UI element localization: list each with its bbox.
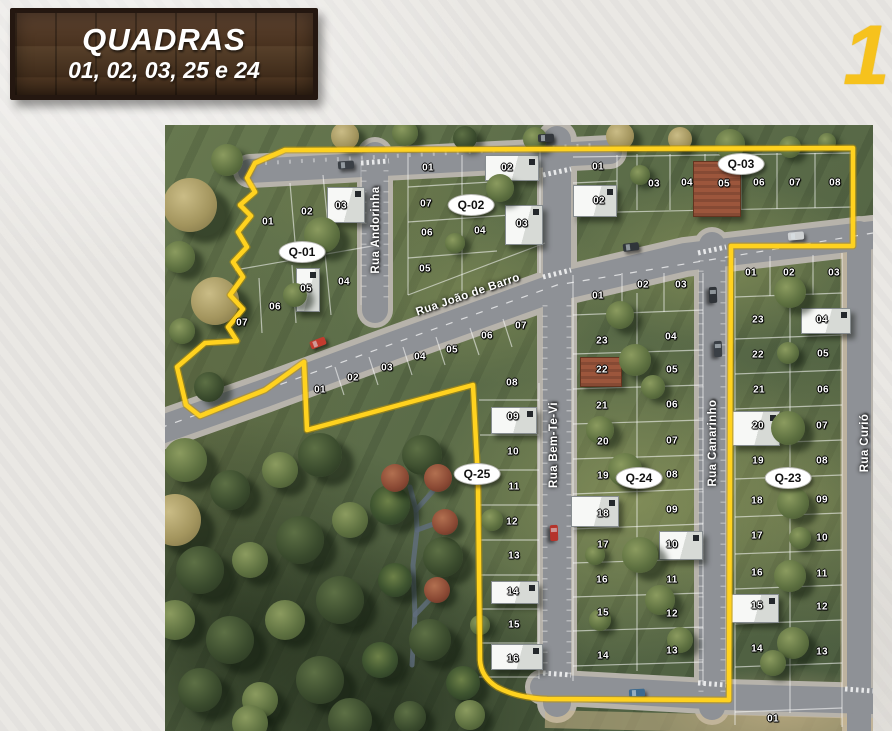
quadra-badge: Q-25 — [454, 463, 501, 485]
lot-number: 07 — [515, 321, 527, 332]
lot-number: 20 — [597, 437, 609, 448]
sign-subtitle: 01, 02, 03, 25 e 24 — [68, 57, 260, 84]
lot-number: 06 — [753, 178, 765, 189]
corner-digit: 1 — [843, 18, 892, 98]
lot-number: 02 — [501, 163, 513, 174]
lot-number: 02 — [347, 373, 359, 384]
lot-number: 11 — [508, 482, 519, 493]
lot-number: 23 — [752, 315, 764, 326]
lot-number: 18 — [597, 509, 609, 520]
lot-number: 11 — [666, 575, 677, 586]
lot-number: 19 — [597, 471, 609, 482]
lot-number: 07 — [816, 421, 828, 432]
lot-number: 05 — [300, 284, 312, 295]
lot-number: 17 — [597, 540, 609, 551]
lot-number: 12 — [666, 609, 678, 620]
lot-number: 01 — [592, 291, 604, 302]
lot-number: 03 — [828, 268, 840, 279]
street-label: Rua Curió — [859, 414, 871, 473]
lot-number: 19 — [752, 456, 764, 467]
lot-number: 07 — [236, 318, 248, 329]
lot-number: 22 — [596, 365, 608, 376]
lot-number: 03 — [516, 219, 528, 230]
lot-number: 23 — [596, 336, 608, 347]
lot-number: 13 — [666, 646, 678, 657]
quadra-badge: Q-02 — [448, 194, 495, 216]
lot-number: 04 — [665, 332, 677, 343]
lot-number: 02 — [637, 280, 649, 291]
lot-number: 14 — [597, 651, 609, 662]
lot-number: 06 — [421, 228, 433, 239]
lot-number: 11 — [816, 569, 827, 580]
quadra-badge: Q-03 — [718, 153, 765, 175]
sign-title: QUADRAS — [82, 24, 246, 57]
lot-number: 13 — [508, 551, 520, 562]
lot-number: 05 — [446, 345, 458, 356]
lot-number: 05 — [419, 264, 431, 275]
lot-number: 15 — [597, 608, 609, 619]
street-label: Rua Andorinha — [370, 186, 382, 273]
quadra-badge: Q-01 — [279, 241, 326, 263]
lot-number: 16 — [507, 654, 519, 665]
lot-number: 07 — [420, 199, 432, 210]
lot-number: 16 — [751, 568, 763, 579]
lot-number: 04 — [338, 277, 350, 288]
lot-number: 10 — [816, 533, 828, 544]
lot-number: 06 — [481, 331, 493, 342]
lot-number: 07 — [789, 178, 801, 189]
lot-number: 12 — [816, 602, 828, 613]
page: { "sign": { "title": "QUADRAS", "subtitl… — [0, 0, 892, 731]
lot-number: 03 — [381, 363, 393, 374]
lot-number: 04 — [474, 226, 486, 237]
lot-number: 12 — [506, 517, 518, 528]
lot-number: 14 — [751, 644, 763, 655]
lot-number: 08 — [666, 470, 678, 481]
lot-number: 09 — [816, 495, 828, 506]
lot-number: 05 — [718, 179, 730, 190]
lot-number: 22 — [752, 350, 764, 361]
quadra-badge: Q-23 — [765, 467, 812, 489]
lot-number: 21 — [596, 401, 608, 412]
lot-number: 01 — [422, 163, 434, 174]
lot-number: 15 — [508, 620, 520, 631]
lot-number: 10 — [666, 540, 678, 551]
lot-number: 16 — [596, 575, 608, 586]
lot-number: 15 — [751, 601, 763, 612]
street-label: Rua Bem-Te-Vi — [548, 402, 560, 488]
lot-number: 13 — [816, 647, 828, 658]
lot-number: 14 — [507, 587, 519, 598]
lot-number: 02 — [593, 196, 605, 207]
lot-number: 06 — [666, 400, 678, 411]
quadra-badge: Q-24 — [616, 467, 663, 489]
lot-number: 08 — [816, 456, 828, 467]
lot-number: 18 — [751, 496, 763, 507]
lot-number: 01 — [592, 162, 604, 173]
quadras-sign: QUADRAS 01, 02, 03, 25 e 24 — [10, 8, 318, 100]
lot-number: 08 — [829, 178, 841, 189]
lot-number: 01 — [767, 714, 779, 725]
street-label: Rua Canarinho — [707, 400, 719, 487]
lot-number: 21 — [753, 385, 765, 396]
lot-number: 05 — [817, 349, 829, 360]
lot-number: 04 — [414, 352, 426, 363]
lot-number: 01 — [314, 385, 326, 396]
lot-number: 08 — [506, 378, 518, 389]
lot-number: 10 — [507, 447, 519, 458]
lot-number: 03 — [675, 280, 687, 291]
lot-number: 02 — [301, 207, 313, 218]
lot-number: 03 — [648, 179, 660, 190]
lot-number: 06 — [817, 385, 829, 396]
lot-number: 06 — [269, 302, 281, 313]
lot-number: 20 — [752, 421, 764, 432]
lot-number: 03 — [335, 201, 347, 212]
lot-number: 09 — [507, 412, 519, 423]
lot-number: 04 — [816, 315, 828, 326]
lot-number: 17 — [751, 531, 763, 542]
lot-number: 01 — [745, 268, 757, 279]
lot-number: 07 — [666, 436, 678, 447]
lot-number: 02 — [783, 268, 795, 279]
lot-number: 04 — [681, 178, 693, 189]
lot-number: 09 — [666, 505, 678, 516]
lot-number: 05 — [666, 365, 678, 376]
site-map: 0102030405060701020304050607010203040506… — [165, 125, 873, 731]
lot-number: 01 — [262, 217, 274, 228]
